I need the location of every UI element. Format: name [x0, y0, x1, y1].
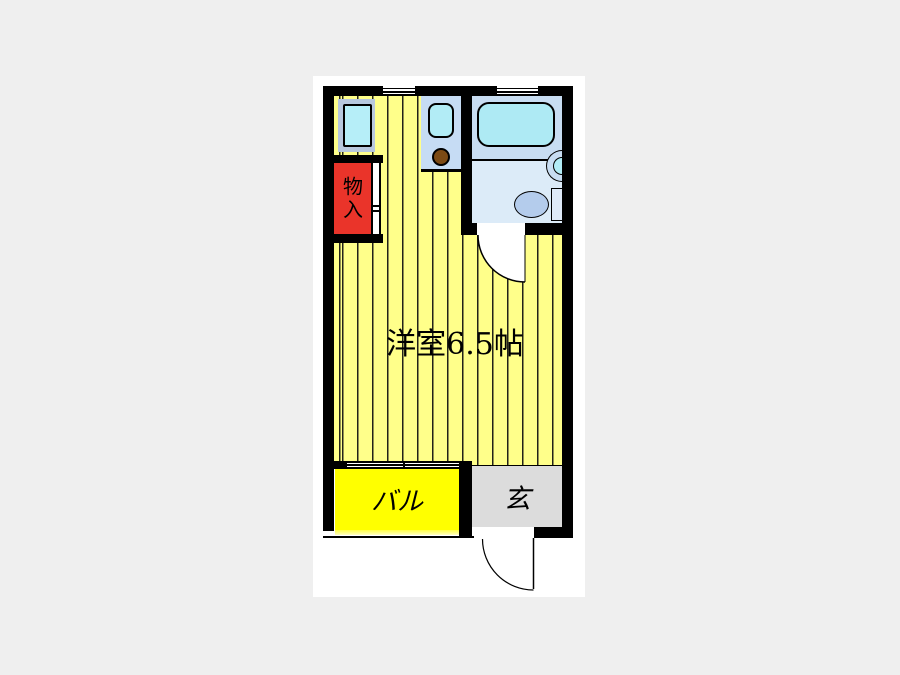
floorplan-page: 玄 バル 物入: [313, 76, 585, 597]
floorplan-image: 玄 バル 物入: [0, 0, 900, 675]
main-room-label: 洋室6.5帖: [334, 330, 576, 360]
entrance-door-arc: [483, 539, 534, 590]
bathroom-door-swing: [478, 235, 525, 282]
